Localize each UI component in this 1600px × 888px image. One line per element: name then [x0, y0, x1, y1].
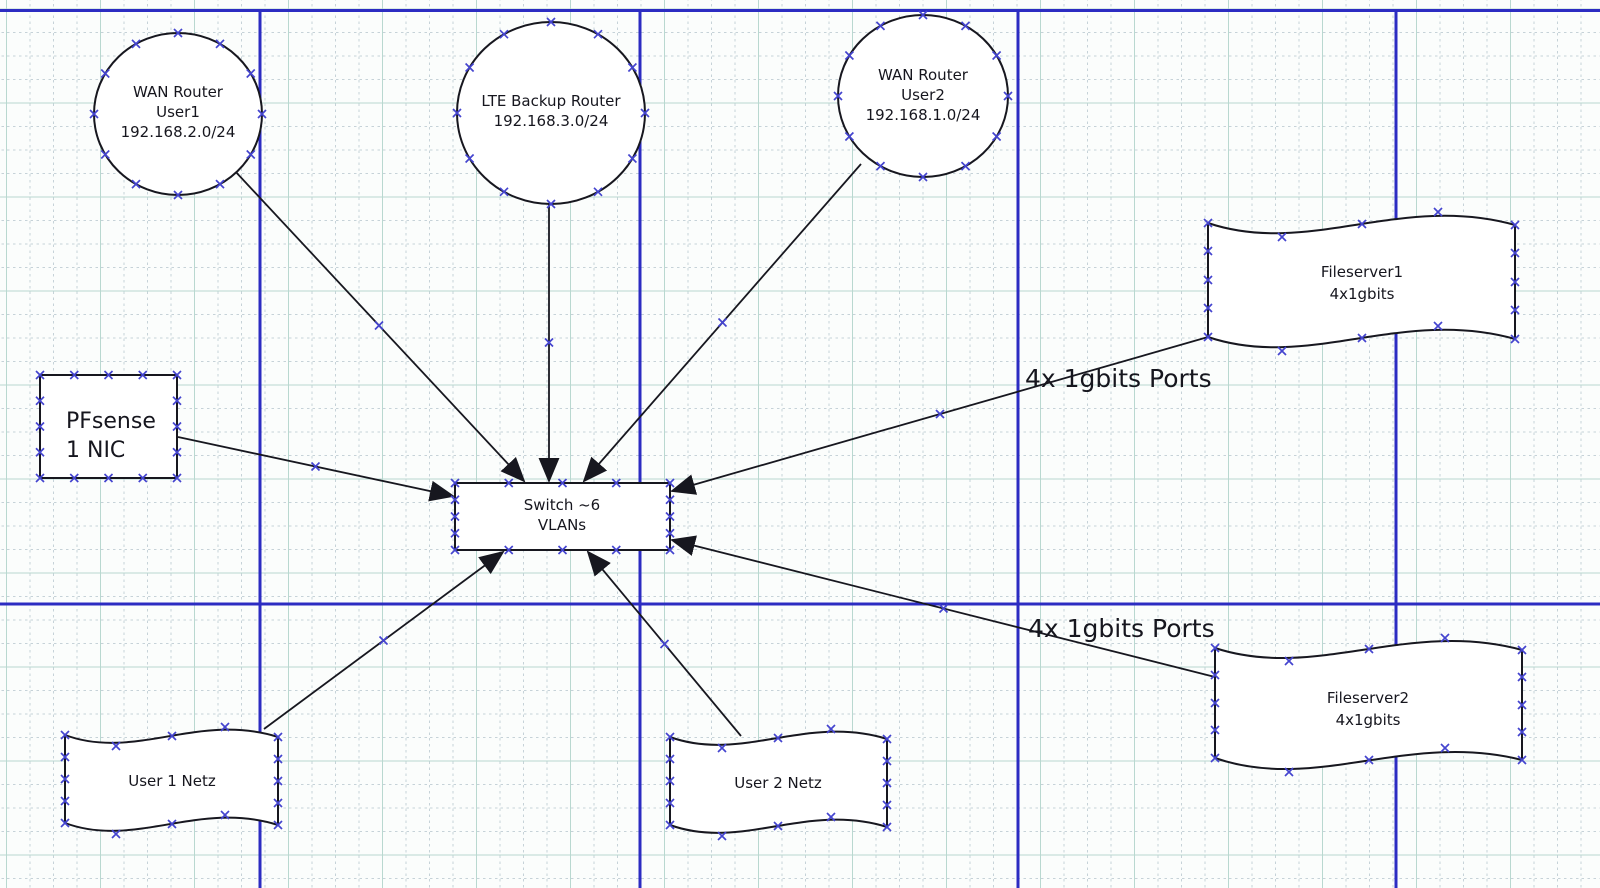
node-label-line: Switch ~6 [524, 496, 600, 514]
ports-label-2[interactable]: 4x 1gbits Ports [1028, 614, 1215, 643]
ports-label-1[interactable]: 4x 1gbits Ports [1025, 364, 1212, 393]
node-user1-netz[interactable]: User 1 Netz [65, 730, 278, 831]
node-label-line: User 2 Netz [734, 774, 822, 792]
node-user2-netz[interactable]: User 2 Netz [670, 732, 887, 833]
node-label-line: 192.168.3.0/24 [494, 112, 609, 130]
diagram-canvas[interactable]: WAN Router User1 192.168.2.0/24 LTE Back… [0, 0, 1600, 888]
node-wan-router-user1[interactable]: WAN Router User1 192.168.2.0/24 [94, 33, 262, 195]
flag-shape[interactable] [1208, 216, 1515, 348]
node-label-line: Fileserver2 [1327, 689, 1409, 707]
node-switch[interactable]: Switch ~6 VLANs [455, 483, 670, 550]
network-diagram: WAN Router User1 192.168.2.0/24 LTE Back… [0, 0, 1600, 888]
node-label-line: VLANs [538, 516, 586, 534]
node-lte-backup-router[interactable]: LTE Backup Router 192.168.3.0/24 [457, 22, 645, 204]
node-wan-router-user2[interactable]: WAN Router User2 192.168.1.0/24 [838, 15, 1008, 177]
node-label-line: 4x1gbits [1330, 285, 1395, 303]
node-label-line: 4x1gbits [1336, 711, 1401, 729]
node-label-line: Fileserver1 [1321, 263, 1403, 281]
node-label-line: User2 [901, 86, 945, 104]
node-label-line: WAN Router [133, 83, 224, 101]
node-label-line: User 1 Netz [128, 772, 216, 790]
node-label-line: LTE Backup Router [481, 92, 621, 110]
node-fileserver1[interactable]: Fileserver1 4x1gbits [1208, 216, 1515, 348]
node-label-line: 1 NIC [66, 438, 125, 463]
node-label-line: WAN Router [878, 66, 969, 84]
node-label-line: User1 [156, 103, 200, 121]
node-label-line: 192.168.1.0/24 [866, 106, 981, 124]
node-fileserver2[interactable]: Fileserver2 4x1gbits [1215, 641, 1522, 769]
node-label-line: 192.168.2.0/24 [121, 123, 236, 141]
node-pfsense[interactable]: PFsense 1 NIC [40, 375, 177, 478]
node-label-line: PFsense [66, 409, 156, 434]
